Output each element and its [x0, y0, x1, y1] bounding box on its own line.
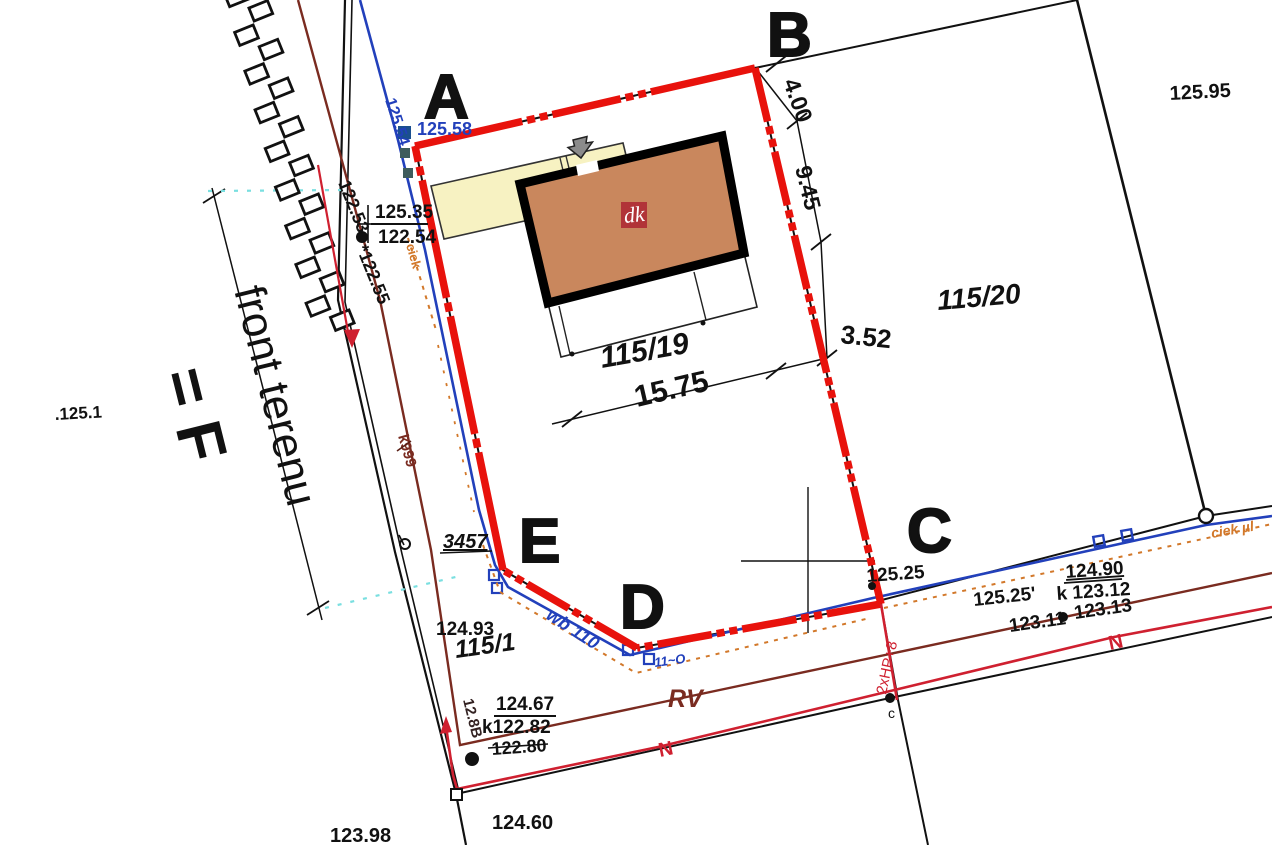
svg-text:C: C — [907, 497, 952, 566]
svg-text:dk: dk — [623, 201, 647, 228]
svg-text:B: B — [767, 1, 812, 70]
svg-text:125.25: 125.25 — [866, 562, 926, 587]
svg-text:E: E — [519, 507, 560, 576]
svg-text:3.52: 3.52 — [839, 319, 892, 354]
svg-text:124.67: 124.67 — [496, 694, 554, 715]
svg-text:125.35: 125.35 — [375, 202, 434, 223]
svg-text:125.95: 125.95 — [1169, 80, 1231, 105]
svg-text:.125.1: .125.1 — [54, 403, 102, 424]
svg-text:3457: 3457 — [443, 531, 488, 553]
svg-text:D: D — [620, 573, 665, 642]
svg-text:123.98: 123.98 — [330, 825, 391, 845]
svg-text:RV: RV — [668, 685, 705, 713]
svg-text:124.60: 124.60 — [492, 812, 553, 834]
svg-text:125.58: 125.58 — [417, 119, 472, 139]
svg-text:124.93: 124.93 — [436, 619, 494, 640]
svg-text:c: c — [888, 705, 895, 721]
